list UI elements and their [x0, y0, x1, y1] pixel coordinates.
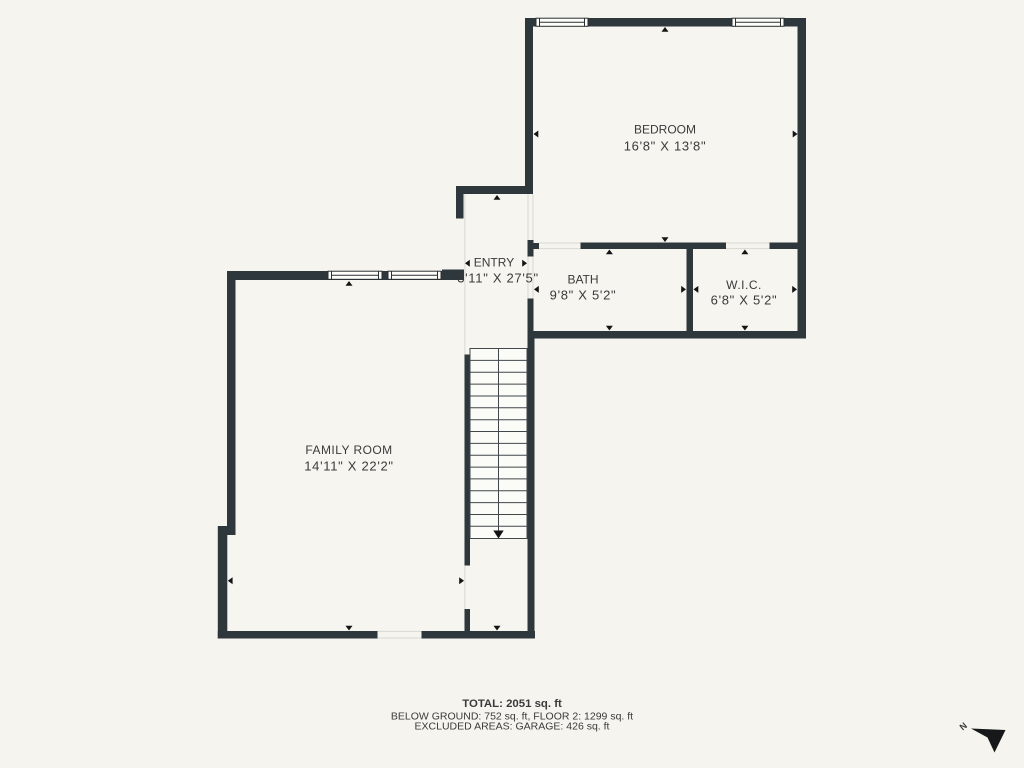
svg-text:14'11" X 22'2": 14'11" X 22'2"	[304, 459, 394, 474]
svg-text:BATH: BATH	[567, 273, 598, 287]
svg-text:W.I.C.: W.I.C.	[726, 278, 762, 292]
svg-text:6'8" X 5'2": 6'8" X 5'2"	[711, 293, 778, 308]
svg-text:FAMILY ROOM: FAMILY ROOM	[305, 443, 392, 457]
svg-text:3'11" X 27'5": 3'11" X 27'5"	[457, 271, 539, 286]
svg-text:ENTRY: ENTRY	[474, 256, 514, 270]
svg-text:BEDROOM: BEDROOM	[634, 123, 696, 137]
svg-text:16'8" X 13'8": 16'8" X 13'8"	[624, 139, 707, 154]
svg-text:9'8" X 5'2": 9'8" X 5'2"	[550, 288, 617, 303]
svg-text:EXCLUDED AREAS: GARAGE: 426 sq: EXCLUDED AREAS: GARAGE: 426 sq. ft	[415, 721, 610, 733]
svg-text:TOTAL: 2051 sq. ft: TOTAL: 2051 sq. ft	[462, 698, 562, 710]
